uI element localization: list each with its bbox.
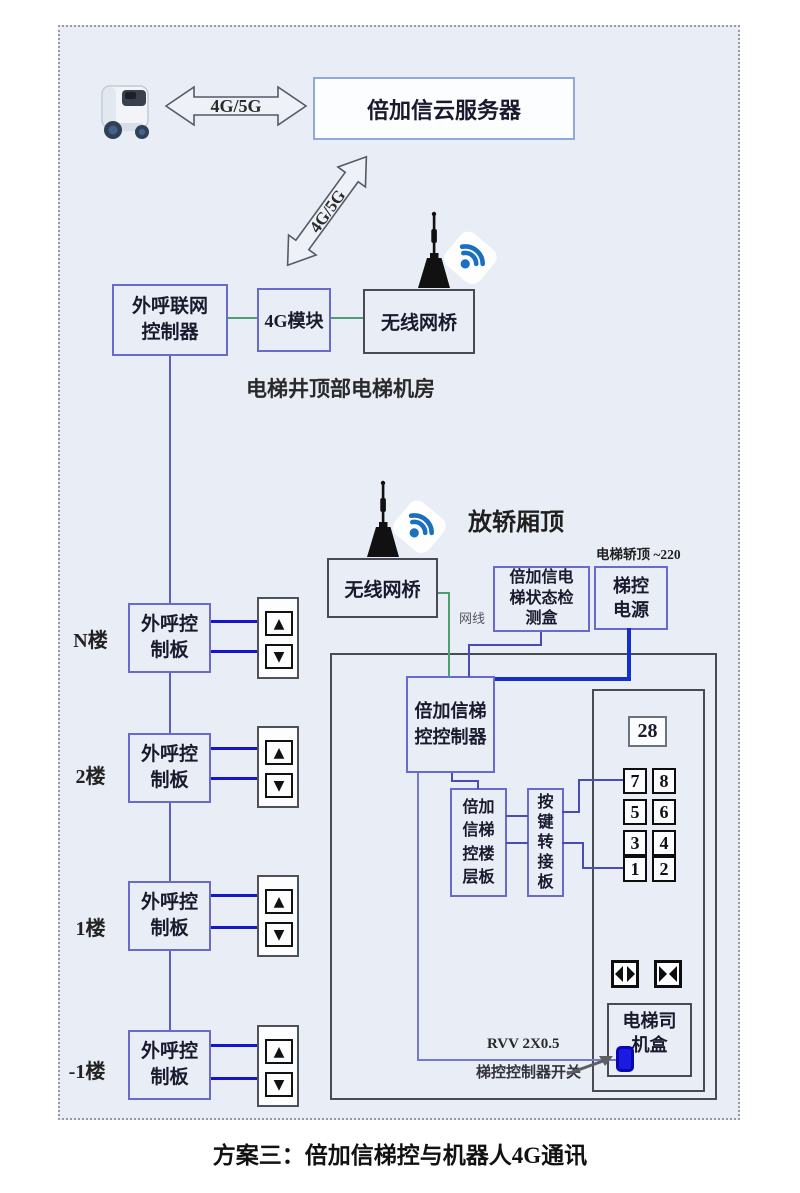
up-arrow-button: ▲ [265,740,293,765]
down-arrow-icon: ▼ [274,1078,285,1092]
outcall-board-n-line1: 外呼控 [141,612,198,638]
floor-indicator-value: 28 [638,720,658,743]
outcall-network-controller-box: 外呼联网 控制器 [112,284,228,356]
wifi-antenna-icon-car [362,480,450,560]
rvv-cable-label: RVV 2X0.5 [487,1036,560,1053]
call-button-panel-minus1: ▲ ▼ [257,1025,299,1107]
up-arrow-button: ▲ [265,611,293,636]
wire-status-h [468,644,542,646]
diagram-page: 4G/5G 倍加信云服务器 4G/5G 外呼联网 控制器 4G模块 无线网桥 [0,0,800,1193]
wire-adapter-btn1-a [562,842,584,844]
outcall-board-box-2: 外呼控 制板 [128,733,211,803]
wireless-bridge-label-1: 无线网桥 [381,308,457,335]
door-close-icon [657,963,679,985]
down-arrow-button: ▼ [265,922,293,947]
down-arrow-button: ▼ [265,1072,293,1097]
diag-link-4g5g-label: 4G/5G [306,186,350,236]
floor-button-1: 1 [623,856,647,882]
floor-board-box: 倍加 信梯 控楼 层板 [450,788,507,897]
floor-label-minus1: -1楼 [56,1055,118,1084]
call-button-panel-2: ▲ ▼ [257,726,299,808]
down-arrow-icon: ▼ [274,650,285,664]
floor-board-line3: 控楼 [462,843,494,866]
wire-adapter-btn1-b [582,842,584,869]
key-adapter-line5: 板 [537,873,553,893]
cloud-server-label: 倍加信云服务器 [367,93,521,125]
status-box-line1: 倍加信电 [509,568,573,589]
wire-status-v2 [468,644,470,677]
car-top-power-note: 电梯轿顶 ~220 [596,543,681,563]
wire-board-adapter-1 [506,815,528,817]
floor-button-2: 2 [652,856,676,882]
wire-call-1-down [211,926,257,929]
wire-trunk-4 [169,951,171,1030]
power-box-line2: 电源 [613,598,649,622]
controller-switch [616,1046,634,1072]
up-arrow-icon: ▲ [274,746,285,760]
door-close-button [654,960,682,988]
down-arrow-button: ▼ [265,644,293,669]
floor-button-8: 8 [652,768,676,794]
car-top-caption: 放轿厢顶 [468,502,564,537]
power-box-line1: 梯控 [613,574,649,598]
outcall-board-1-line2: 制板 [150,916,188,942]
wire-call-2-up [211,747,257,750]
outcall-board-2-line2: 制板 [150,768,188,794]
floor-label-1: 1楼 [63,912,118,941]
outcall-board-box-n: 外呼控 制板 [128,603,211,673]
up-arrow-button: ▲ [265,889,293,914]
wire-rvv-v [417,773,419,1061]
outcall-board-2-line1: 外呼控 [141,742,198,768]
outcall-board-n-line2: 制板 [150,638,188,664]
floor-button-7: 7 [623,768,647,794]
wire-adapter-btn1-c [582,867,623,869]
floor-board-line2: 信梯 [462,819,494,842]
wire-trunk-2 [169,673,171,733]
link-4g5g-label: 4G/5G [210,96,261,116]
floor-label-2: 2楼 [63,760,118,789]
module-4g-box: 4G模块 [257,288,331,352]
key-adapter-board-box: 按 键 转 接 板 [527,788,564,897]
wire-adapter-btn7-c [578,779,623,781]
outcall-board-box-minus1: 外呼控 制板 [128,1030,211,1100]
wire-4gmodule-bridge [331,317,363,319]
machine-room-caption: 电梯井顶部电梯机房 [246,373,435,403]
wire-power-h [495,677,631,681]
wire-call-n-up [211,620,257,623]
up-arrow-icon: ▲ [274,895,285,909]
wifi-antenna-icon [413,211,501,291]
wire-call-2-down [211,777,257,780]
down-arrow-button: ▼ [265,773,293,798]
up-arrow-icon: ▲ [274,617,285,631]
key-adapter-line2: 键 [537,813,553,833]
down-arrow-icon: ▼ [274,779,285,793]
wire-call-m1-down [211,1077,257,1080]
wire-ctrl-board-h [451,780,479,782]
floor-label-n: N楼 [63,624,118,653]
wire-bridge-green-v [448,592,450,677]
wire-ctrl-board-v2 [477,780,479,789]
link-arrow-cloud-4gmodule: 4G/5G [266,146,388,276]
elevator-control-controller-box: 倍加信梯 控控制器 [406,676,495,773]
wire-call-m1-up [211,1044,257,1047]
outcall-network-controller-line1: 外呼联网 [132,294,208,320]
status-box-line2: 梯状态检 [509,589,573,610]
wire-trunk-3 [169,803,171,881]
net-cable-label: 网线 [459,608,485,627]
down-arrow-icon: ▼ [274,928,285,942]
outcall-board-box-1: 外呼控 制板 [128,881,211,951]
driver-box-line2: 机盒 [632,1033,668,1057]
key-adapter-line3: 转 [537,833,553,853]
floor-button-6: 6 [652,799,676,825]
floor-indicator-display: 28 [628,716,667,747]
wire-controller-4gmodule [228,317,257,319]
floor-board-line4: 层板 [462,866,494,889]
outcall-board-m1-line2: 制板 [150,1065,188,1091]
robot-icon [96,78,158,142]
wireless-bridge-box-machine-room: 无线网桥 [363,289,475,354]
wire-call-1-up [211,894,257,897]
key-adapter-line4: 接 [537,853,553,873]
elevator-status-detect-box: 倍加信电 梯状态检 测盒 [493,566,590,632]
floor-board-line1: 倍加 [462,796,494,819]
cloud-server-box: 倍加信云服务器 [313,77,575,140]
link-arrow-robot-cloud: 4G/5G [162,82,310,130]
wire-board-adapter-2 [506,842,528,844]
floor-button-3: 3 [623,830,647,856]
key-adapter-line1: 按 [537,793,553,813]
controller-line1: 倍加信梯 [415,699,487,724]
door-open-icon [614,963,636,985]
call-button-panel-n: ▲ ▼ [257,597,299,679]
wireless-bridge-label-2: 无线网桥 [344,575,420,602]
door-open-button [611,960,639,988]
outcall-board-1-line1: 外呼控 [141,890,198,916]
controller-line2: 控控制器 [415,725,487,750]
switch-pointer-arrow [563,1048,619,1078]
wire-call-n-down [211,650,257,653]
wire-adapter-btn7-b [578,779,580,813]
outcall-network-controller-line2: 控制器 [141,320,198,346]
diagram-caption: 方案三：倍加信梯控与机器人4G通讯 [0,1136,800,1170]
wireless-bridge-box-car: 无线网桥 [327,558,438,618]
outcall-board-m1-line1: 外呼控 [141,1039,198,1065]
call-button-panel-1: ▲ ▼ [257,875,299,957]
driver-box-line1: 电梯司 [623,1009,677,1033]
module-4g-label: 4G模块 [264,307,323,333]
floor-button-4: 4 [652,830,676,856]
wire-trunk-1 [169,356,171,603]
up-arrow-button: ▲ [265,1039,293,1064]
wire-power-v [627,628,631,681]
elevator-control-power-box: 梯控 电源 [594,566,668,630]
up-arrow-icon: ▲ [274,1045,285,1059]
status-box-line3: 测盒 [525,609,557,630]
floor-button-5: 5 [623,799,647,825]
